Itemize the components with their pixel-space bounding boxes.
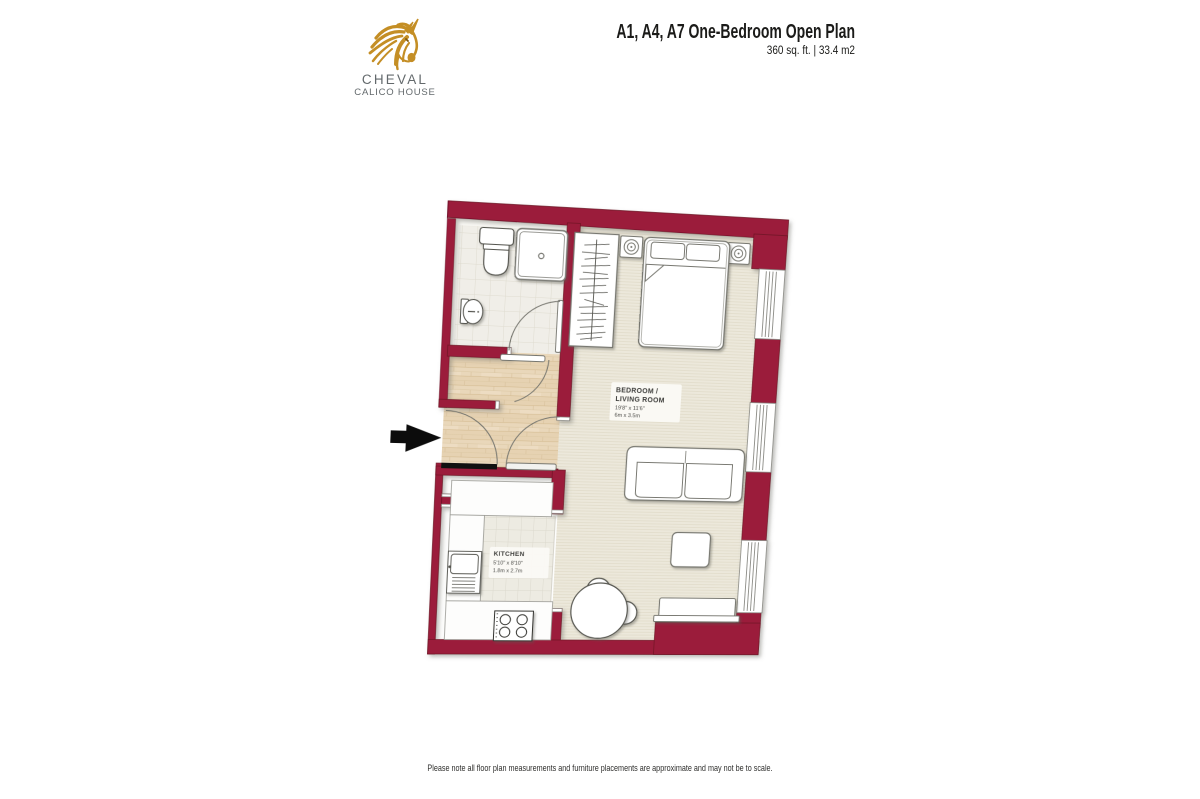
svg-text:5'10" x 8'10": 5'10" x 8'10": [493, 561, 523, 567]
svg-text:19'8" x 11'6": 19'8" x 11'6": [615, 406, 645, 412]
svg-text:LIVING ROOM: LIVING ROOM: [615, 395, 665, 405]
svg-text:6m x 3.5m: 6m x 3.5m: [614, 413, 640, 419]
svg-text:KITCHEN: KITCHEN: [493, 551, 524, 558]
svg-text:1.8m x 2.7m: 1.8m x 2.7m: [493, 569, 523, 575]
